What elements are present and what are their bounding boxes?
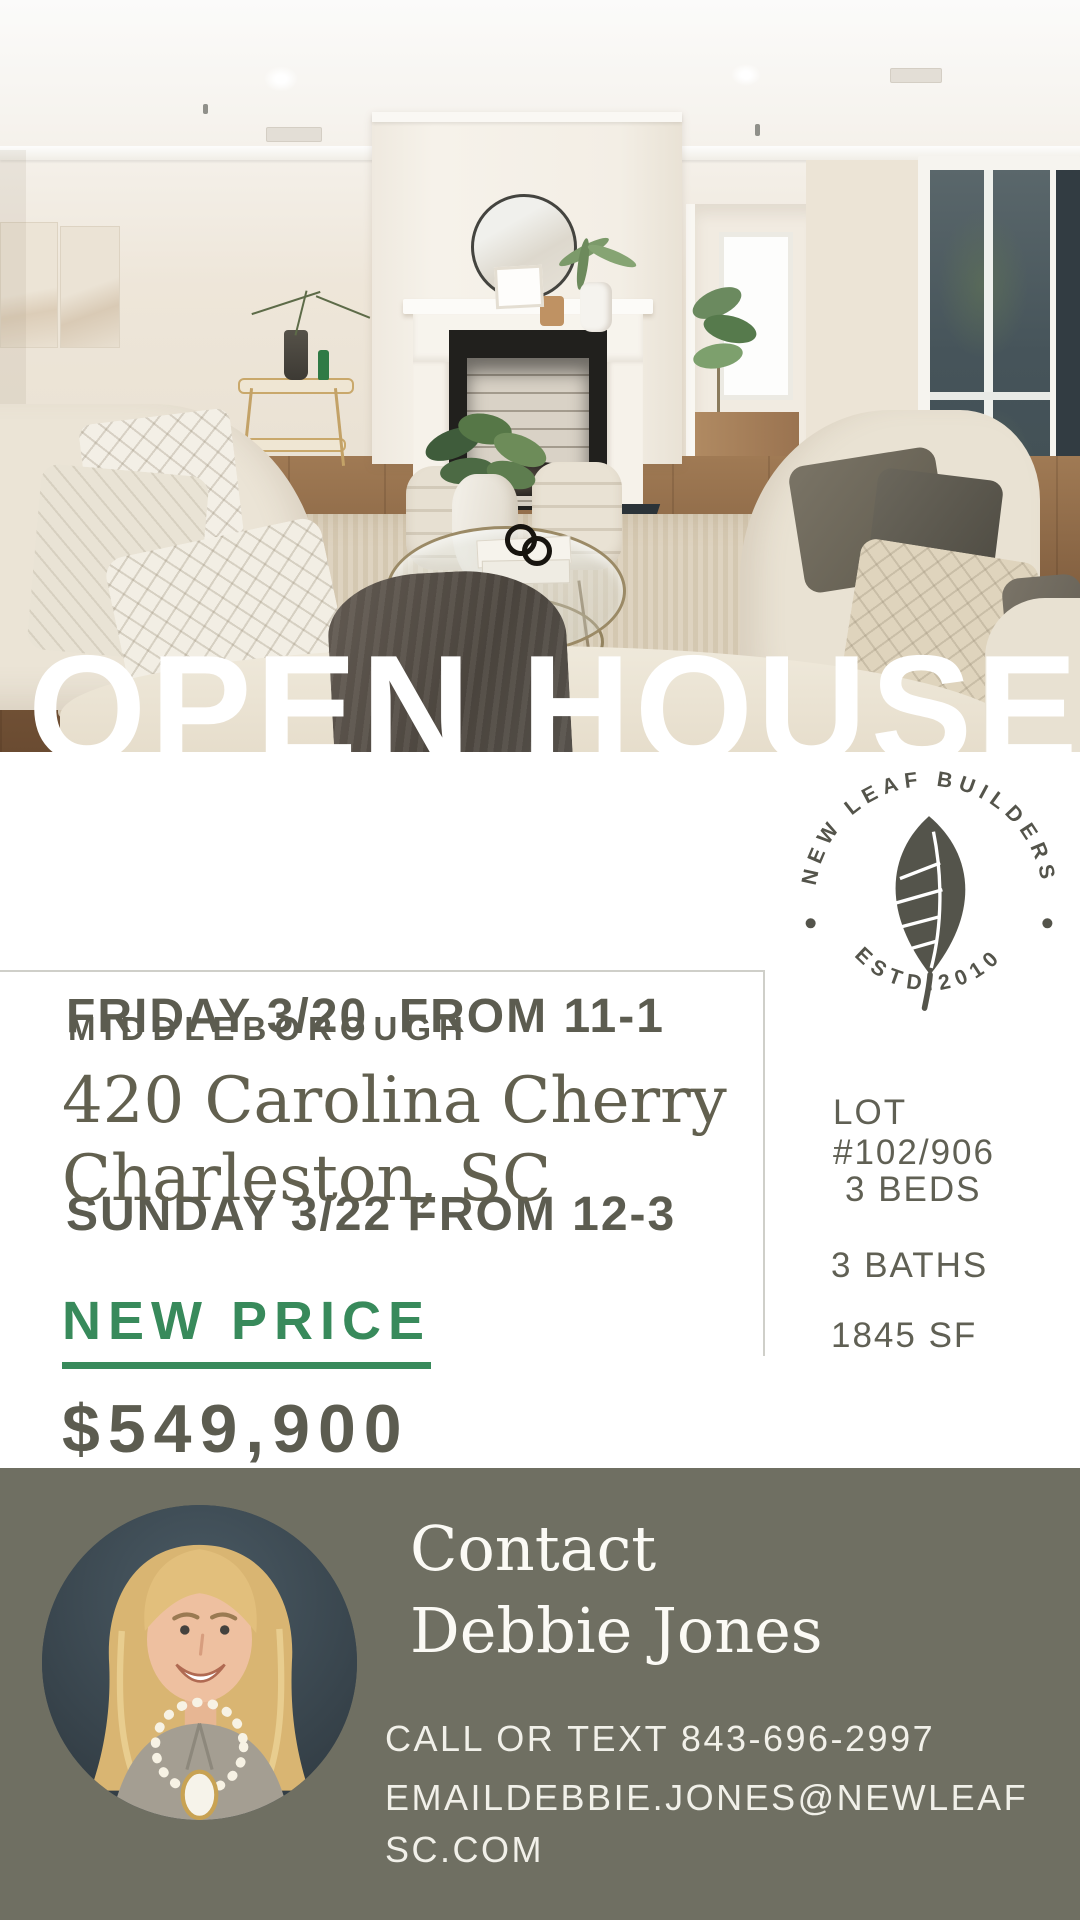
contact-phone: CALL OR TEXT 843-696-2997	[385, 1718, 935, 1760]
ceiling-light	[258, 62, 304, 96]
contact-heading-line-1: Contact	[410, 1508, 823, 1590]
sprinkler	[203, 104, 208, 114]
spec-baths: 3 BATHS	[831, 1246, 988, 1286]
builder-logo-badge: NEW LEAF BUILDERS ESTD.2010	[795, 758, 1063, 1026]
ceiling-vent	[890, 68, 942, 83]
open-house-title: OPEN HOUSE	[28, 633, 1080, 752]
green-bottle	[318, 350, 329, 380]
address-line-1: 420 Carolina Cherry	[62, 1062, 727, 1140]
agent-portrait-illustration	[42, 1505, 357, 1820]
door-rail	[930, 392, 1050, 400]
badge-dot	[1042, 918, 1052, 928]
property-address: 420 Carolina Cherry Charleston, SC	[62, 1062, 727, 1218]
mantel-frame	[494, 265, 544, 309]
spec-square-feet: 1845 SF	[831, 1316, 977, 1356]
spec-lot-number: LOT #102/906	[833, 1093, 1080, 1173]
bar-cart-leg	[334, 388, 345, 466]
mantel-vase	[580, 282, 612, 332]
branch	[251, 291, 320, 315]
branch	[316, 295, 371, 319]
wall-art	[60, 226, 120, 348]
spec-beds: 3 BEDS	[845, 1170, 982, 1210]
contact-heading-line-2: Debbie Jones	[410, 1590, 823, 1672]
hero-photo: OPEN HOUSE	[0, 0, 1080, 752]
open-house-flyer: OPEN HOUSE FRIDAY 3/20 FROM 11-1 SUNDAY …	[0, 0, 1080, 1920]
contact-email: EMAILDEBBIE.JONES@NEWLEAFSC.COM	[385, 1772, 1035, 1876]
new-price-label: NEW PRICE	[62, 1290, 431, 1369]
sprinkler	[755, 124, 760, 136]
ceiling-light	[726, 60, 766, 90]
contact-heading: Contact Debbie Jones	[410, 1508, 823, 1672]
ceiling-vent	[266, 127, 322, 142]
sunroom-opening	[686, 204, 826, 470]
agent-photo	[42, 1505, 357, 1820]
branch-vase	[284, 330, 308, 380]
vertical-divider	[763, 970, 765, 1356]
chimney-cap	[372, 112, 682, 122]
tree-reflection	[938, 210, 1028, 360]
horizontal-divider	[0, 970, 764, 972]
badge-dot	[806, 918, 816, 928]
price-value: $549,900	[62, 1390, 410, 1468]
neighborhood-label: MIDDLEBOROUGH	[68, 1010, 471, 1048]
address-line-2: Charleston, SC	[62, 1140, 727, 1218]
chain-decor	[522, 536, 552, 566]
